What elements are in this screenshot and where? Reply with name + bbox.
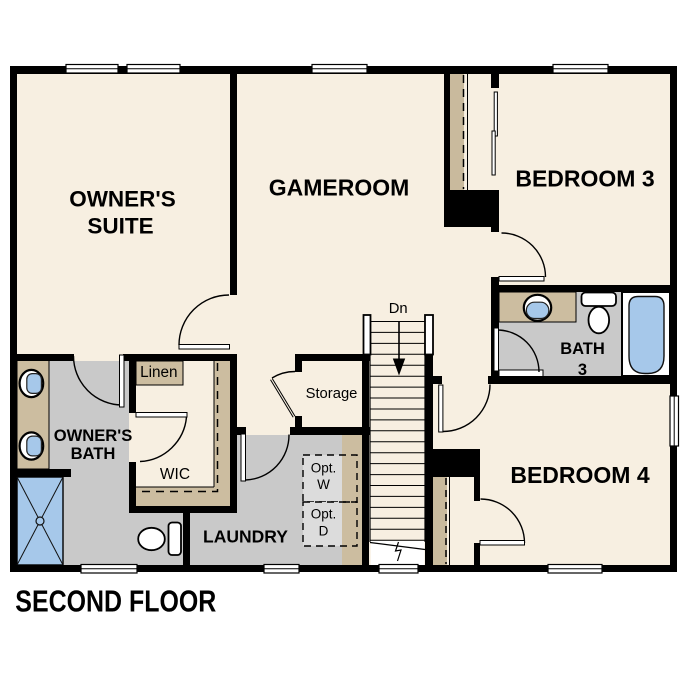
svg-text:WIC: WIC — [160, 466, 190, 483]
svg-text:Opt.: Opt. — [311, 506, 337, 521]
svg-text:LAUNDRY: LAUNDRY — [203, 526, 288, 546]
svg-text:Linen: Linen — [140, 364, 177, 381]
svg-text:Dn: Dn — [389, 301, 408, 317]
svg-text:OWNER'S: OWNER'S — [69, 187, 176, 212]
svg-text:BEDROOM 4: BEDROOM 4 — [510, 462, 650, 488]
svg-text:SECOND FLOOR: SECOND FLOOR — [15, 584, 216, 619]
svg-text:W: W — [317, 477, 330, 492]
svg-text:SUITE: SUITE — [87, 214, 153, 239]
svg-text:BATH: BATH — [560, 340, 605, 358]
svg-text:Storage: Storage — [306, 386, 358, 402]
svg-text:GAMEROOM: GAMEROOM — [269, 175, 410, 201]
svg-text:OWNER'S: OWNER'S — [54, 426, 133, 445]
svg-text:3: 3 — [578, 361, 587, 379]
svg-text:BEDROOM 3: BEDROOM 3 — [515, 166, 654, 192]
svg-text:Opt.: Opt. — [311, 460, 337, 475]
svg-text:BATH: BATH — [71, 444, 116, 463]
svg-text:D: D — [319, 523, 329, 538]
